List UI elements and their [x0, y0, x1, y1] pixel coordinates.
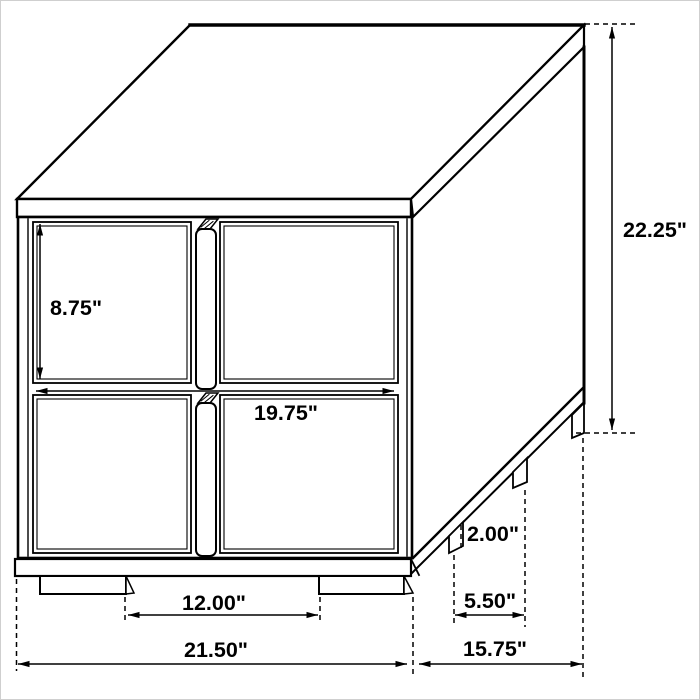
handle-top-drawer: [196, 229, 216, 389]
front-leg-left: [40, 576, 126, 594]
nightstand-dimension-diagram: 8.75" 19.75" 22.25" 12.00" 21.50" 15.75": [1, 1, 700, 700]
dim-leg-height: 2.00": [467, 522, 519, 546]
dim-overall-width: 21.50": [18, 638, 407, 664]
dim-label-overall-depth: 15.75": [463, 637, 527, 661]
side-leg-middle: [513, 458, 527, 488]
dim-label-overall-width: 21.50": [184, 638, 248, 662]
dim-overall-height: 22.25": [612, 27, 687, 430]
drawer-handles: [196, 219, 218, 556]
dim-side-leg-spacing: 5.50": [455, 589, 524, 615]
dim-label-front-leg-spacing: 12.00": [182, 591, 246, 615]
front-leg-right-side: [404, 576, 413, 594]
handle-bottom-drawer: [196, 403, 216, 556]
dim-label-side-leg-spacing: 5.50": [464, 589, 516, 613]
side-base-bottom-edge: [412, 402, 584, 573]
dim-label-drawer-width: 19.75": [254, 401, 318, 425]
dim-front-leg-spacing: 12.00": [128, 591, 318, 615]
dim-label-leg-height: 2.00": [467, 522, 519, 546]
dim-label-drawer-height: 8.75": [50, 296, 102, 320]
base-rail-front: [15, 559, 411, 576]
front-leg-left-side: [126, 576, 134, 594]
top-panel-front-face: [17, 199, 411, 217]
dim-overall-depth: 15.75": [419, 637, 582, 664]
dimension-drawing-canvas: 8.75" 19.75" 22.25" 12.00" 21.50" 15.75": [0, 0, 700, 700]
front-leg-right: [319, 576, 404, 594]
dim-label-overall-height: 22.25": [623, 218, 687, 242]
